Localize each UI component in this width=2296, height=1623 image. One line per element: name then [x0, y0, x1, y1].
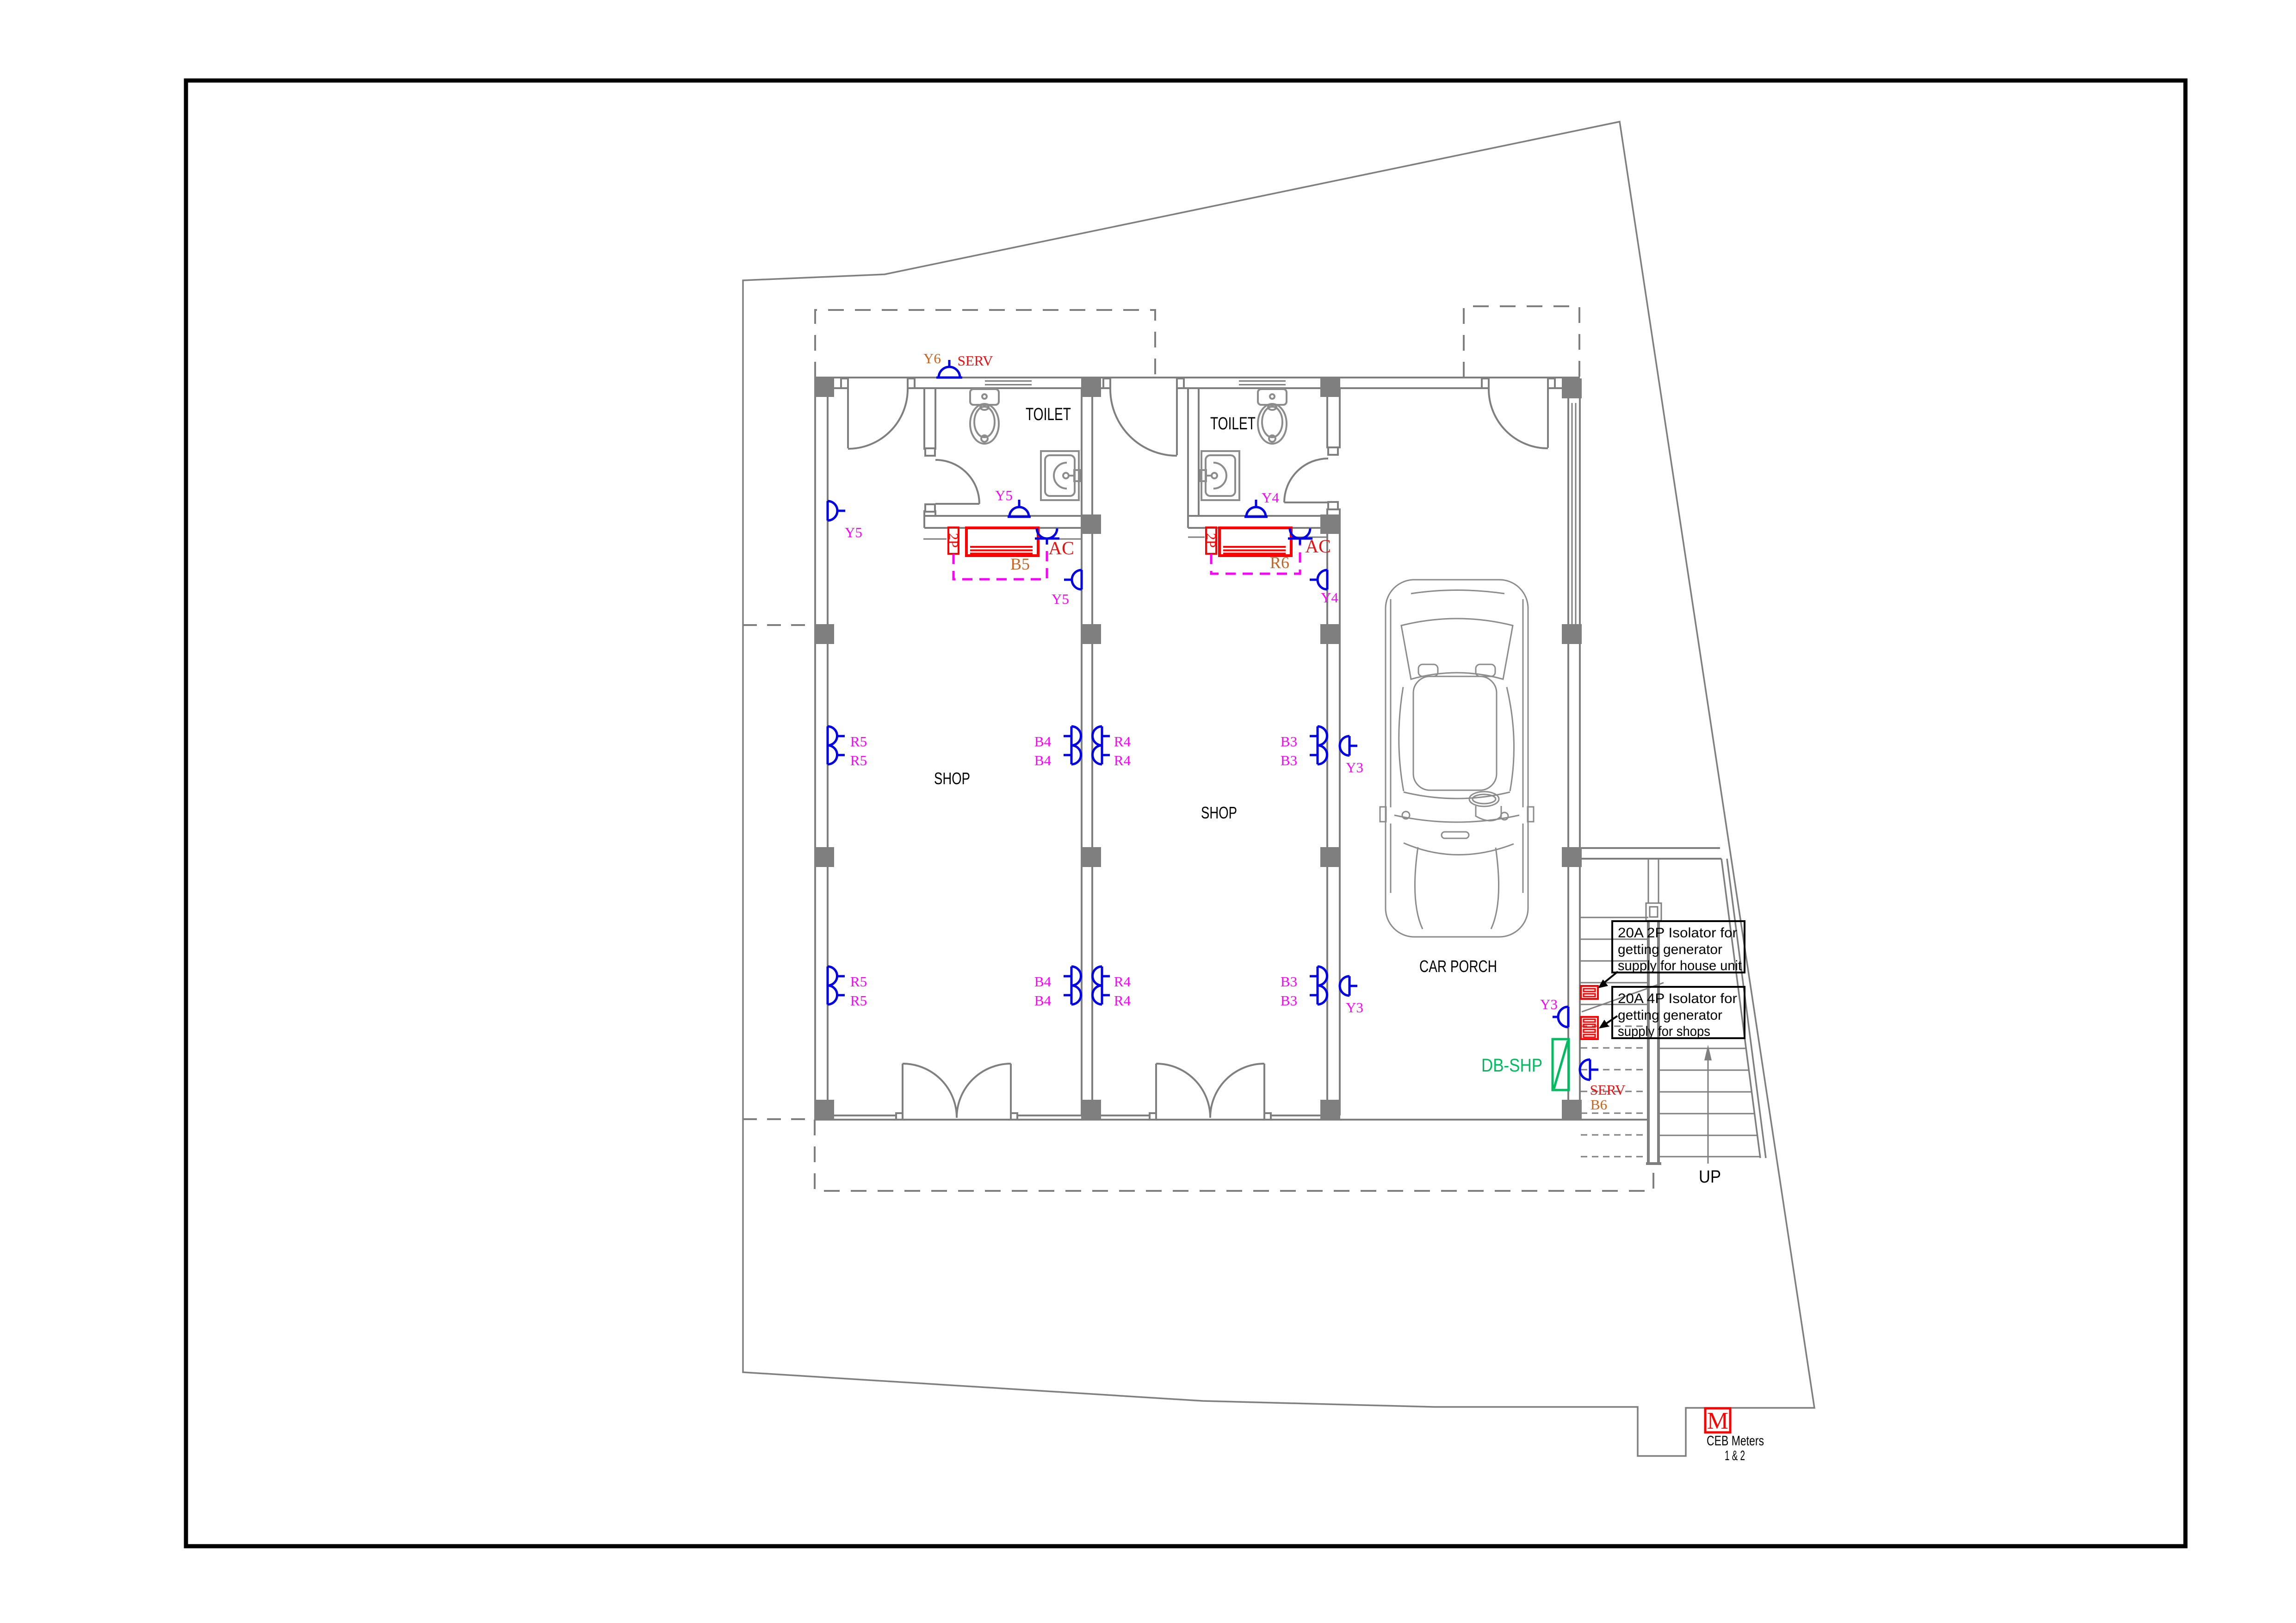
svg-text:B6: B6 [1590, 1096, 1607, 1113]
svg-text:20A 4P Isolator for: 20A 4P Isolator for [1618, 991, 1737, 1006]
svg-text:Y5: Y5 [1052, 591, 1069, 607]
svg-text:SHOP: SHOP [1201, 803, 1237, 822]
svg-text:R5: R5 [850, 973, 867, 990]
svg-text:Y4: Y4 [1321, 589, 1338, 606]
svg-text:B4: B4 [1034, 992, 1052, 1009]
svg-text:R5: R5 [850, 733, 867, 750]
svg-text:getting generator: getting generator [1618, 1008, 1722, 1023]
svg-text:Y3: Y3 [1346, 999, 1363, 1016]
svg-text:B5: B5 [1010, 555, 1030, 573]
svg-text:SERV: SERV [958, 353, 993, 369]
svg-text:B3: B3 [1281, 992, 1297, 1009]
svg-text:SHOP: SHOP [934, 769, 970, 788]
svg-text:DB-SHP: DB-SHP [1481, 1055, 1542, 1076]
svg-text:Y3: Y3 [1540, 996, 1558, 1012]
svg-text:TOILET: TOILET [1026, 405, 1071, 424]
svg-text:supply for shops: supply for shops [1618, 1024, 1710, 1039]
svg-text:R4: R4 [1114, 992, 1131, 1009]
svg-text:2P: 2P [946, 533, 961, 548]
svg-text:Y5: Y5 [995, 487, 1013, 503]
svg-text:CAR PORCH: CAR PORCH [1419, 957, 1497, 976]
svg-text:1 & 2: 1 & 2 [1725, 1448, 1745, 1463]
svg-text:B3: B3 [1281, 733, 1297, 750]
svg-text:M: M [1707, 1408, 1728, 1434]
svg-text:AC: AC [1048, 538, 1074, 558]
svg-text:R4: R4 [1114, 973, 1131, 990]
svg-text:B3: B3 [1281, 752, 1297, 768]
svg-text:Y3: Y3 [1346, 759, 1363, 775]
svg-text:UP: UP [1699, 1167, 1721, 1187]
svg-text:B3: B3 [1281, 973, 1297, 990]
svg-text:Y5: Y5 [845, 524, 862, 540]
svg-text:getting generator: getting generator [1618, 942, 1722, 957]
svg-text:B4: B4 [1034, 733, 1052, 750]
svg-text:R4: R4 [1114, 733, 1131, 750]
svg-text:supply for house unit: supply for house unit [1618, 958, 1742, 973]
svg-text:SERV: SERV [1590, 1082, 1626, 1098]
svg-text:CEB Meters: CEB Meters [1707, 1433, 1764, 1449]
svg-text:R6: R6 [1270, 553, 1289, 572]
svg-text:R5: R5 [850, 752, 867, 768]
svg-text:B4: B4 [1034, 973, 1052, 990]
svg-text:20A 2P Isolator for: 20A 2P Isolator for [1618, 925, 1737, 941]
svg-text:R4: R4 [1114, 752, 1131, 768]
svg-text:AC: AC [1305, 536, 1331, 557]
svg-text:Y6: Y6 [923, 350, 941, 366]
svg-text:TOILET: TOILET [1210, 414, 1256, 434]
svg-text:B4: B4 [1034, 752, 1052, 768]
svg-text:Y4: Y4 [1262, 489, 1279, 506]
svg-text:2P: 2P [1203, 533, 1219, 548]
svg-text:R5: R5 [850, 992, 867, 1009]
